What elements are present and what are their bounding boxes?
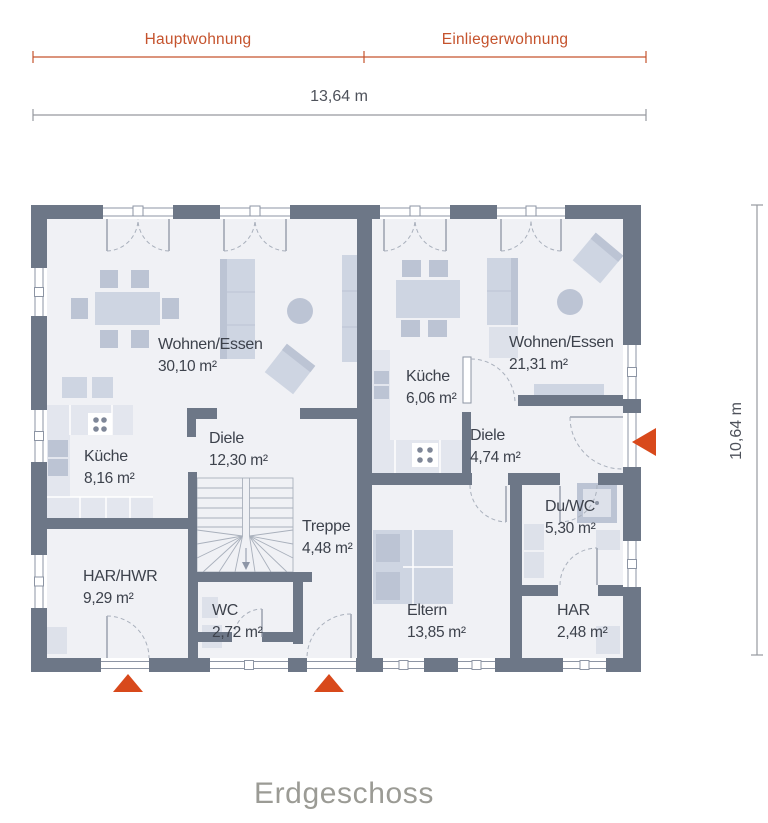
width-dimension: 13,64 m <box>33 88 646 121</box>
floor-title: Erdgeschoss <box>254 777 434 810</box>
entrance-arrow-icon <box>113 674 143 692</box>
room-area-har-einlieger: 2,48 m² <box>557 624 608 641</box>
room-label-treppe: Treppe <box>302 518 351 535</box>
side-table <box>557 289 583 315</box>
window <box>458 658 495 672</box>
window <box>31 268 47 316</box>
room-area-wc: 2,72 m² <box>212 624 263 641</box>
bath-cabinet <box>524 552 544 578</box>
hauptwohnung-label: Hauptwohnung <box>145 31 252 48</box>
window <box>623 541 641 587</box>
room-area-diele-haupt: 12,30 m² <box>209 452 268 469</box>
room-label-har-einlieger: HAR <box>557 602 590 619</box>
sideboard <box>534 384 604 395</box>
floor-plan-page: Hauptwohnung Einliegerwohnung 13,64 m 10… <box>0 0 768 823</box>
window <box>563 658 606 672</box>
double-bed <box>373 530 453 604</box>
room-area-duwc: 5,30 m² <box>545 520 596 537</box>
room-label-kueche-haupt: Küche <box>84 448 128 465</box>
room-label-wohnen-essen-einlieger: Wohnen/Essen <box>509 334 614 351</box>
party-wall <box>357 219 372 658</box>
room-label-kueche-einlieger: Küche <box>406 368 450 385</box>
room-area-har-hwr: 9,29 m² <box>83 590 134 607</box>
room-area-diele-einlieger: 4,74 m² <box>470 449 521 466</box>
width-dimension-label: 13,64 m <box>310 88 368 105</box>
floor-plan-canvas: Hauptwohnung Einliegerwohnung 13,64 m 10… <box>0 0 768 823</box>
entrance-arrow-icon <box>314 674 344 692</box>
einliegerwohnung-label: Einliegerwohnung <box>442 31 568 48</box>
window <box>31 555 47 608</box>
room-area-kueche-haupt: 8,16 m² <box>84 470 135 487</box>
window <box>210 658 288 672</box>
dining-table <box>95 292 160 325</box>
room-label-wc: WC <box>212 602 238 619</box>
basin <box>596 530 620 550</box>
room-label-wohnen-essen-haupt: Wohnen/Essen <box>158 336 263 353</box>
washer <box>47 627 67 654</box>
room-area-wohnen-essen-einlieger: 21,31 m² <box>509 356 568 373</box>
dining-table <box>396 280 460 318</box>
height-dimension: 10,64 m <box>728 205 763 655</box>
sideboard <box>342 255 357 362</box>
window <box>623 345 641 399</box>
toilet <box>524 524 544 550</box>
room-label-har-hwr: HAR/HWR <box>83 568 157 585</box>
room-area-treppe: 4,48 m² <box>302 540 353 557</box>
room-label-eltern: Eltern <box>407 602 447 619</box>
height-dimension-label: 10,64 m <box>728 402 745 460</box>
room-label-diele-haupt: Diele <box>209 430 244 447</box>
room-area-kueche-einlieger: 6,06 m² <box>406 390 457 407</box>
room-label-duwc: Du/WC <box>545 498 595 515</box>
room-area-wohnen-essen-haupt: 30,10 m² <box>158 358 217 375</box>
unit-dimension: Hauptwohnung Einliegerwohnung <box>33 31 646 63</box>
window <box>383 658 424 672</box>
window <box>31 410 47 462</box>
side-table <box>287 298 313 324</box>
room-label-diele-einlieger: Diele <box>470 427 505 444</box>
room-area-eltern: 13,85 m² <box>407 624 466 641</box>
